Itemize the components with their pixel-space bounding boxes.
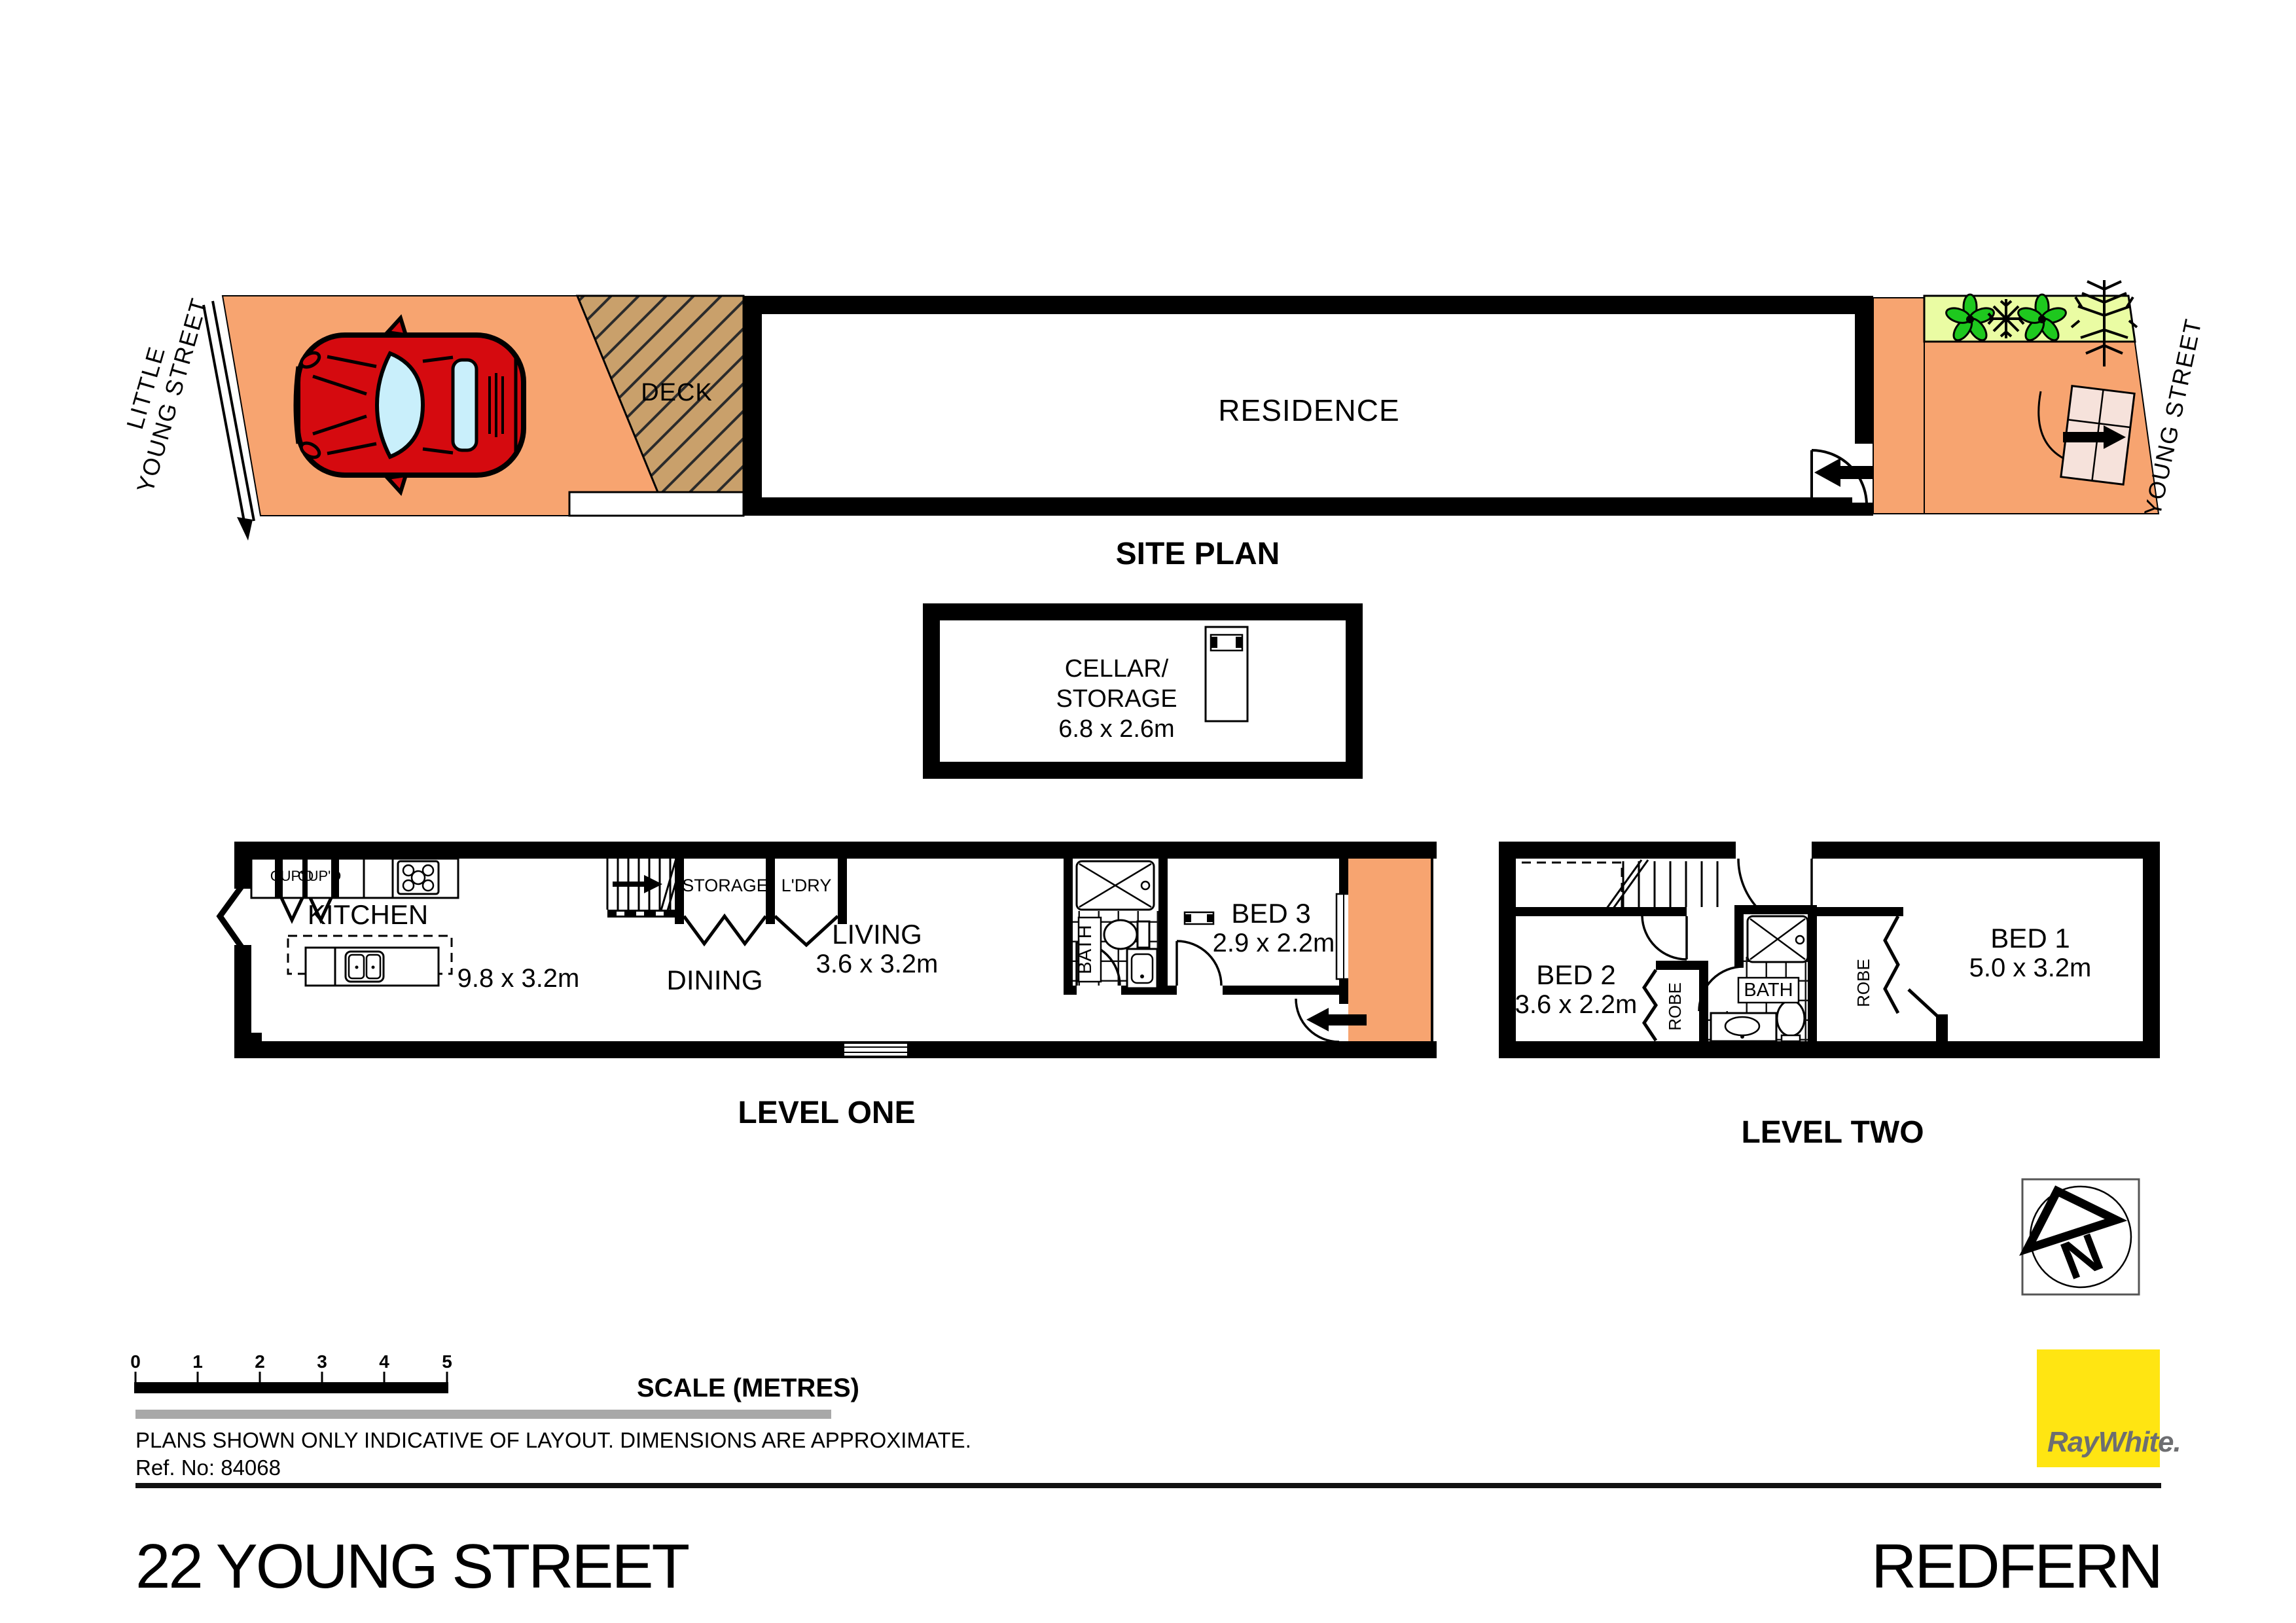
bed1-dimension: 5.0 x 3.2m — [1969, 954, 2092, 982]
scale-tick-1: 1 — [192, 1351, 203, 1372]
deck-step — [569, 492, 744, 516]
street-label-left: LITTLE YOUNG STREET — [105, 287, 213, 495]
scale-tick-0: 0 — [130, 1351, 141, 1372]
bed3-room: BED 3 2.9 x 2.2m — [1158, 859, 1339, 995]
living-dimension: 3.6 x 3.2m — [816, 950, 939, 978]
l2-vanity-icon — [1711, 1013, 1776, 1041]
robe2-label: ROBE — [1854, 959, 1873, 1007]
car-icon — [295, 318, 524, 492]
storage-bifold-door — [684, 916, 766, 944]
gray-divider — [135, 1410, 831, 1419]
l2-shower-icon — [1748, 916, 1808, 962]
l2-top-wall — [1499, 842, 2160, 859]
disclaimer: PLANS SHOWN ONLY INDICATIVE OF LAYOUT. D… — [135, 1428, 971, 1480]
robe1-label: ROBE — [1665, 982, 1685, 1031]
bed3-bench-icon — [1185, 912, 1213, 924]
footer-rule — [135, 1483, 2161, 1488]
bed3-label: BED 3 — [1231, 898, 1310, 929]
floorplan-page: LITTLE YOUNG STREET DECK RESIDENCE — [0, 0, 2296, 1623]
l2-bathroom: BATH — [1699, 905, 1817, 1041]
shower-icon — [1077, 861, 1154, 910]
l2-hall-door — [1642, 916, 1687, 959]
side-passage — [1873, 298, 1924, 514]
scale-tick-3: 3 — [317, 1351, 327, 1372]
cellar-plan: CELLAR/ STORAGE 6.8 x 2.6m — [923, 603, 1363, 779]
dining-label: DINING — [667, 965, 763, 995]
cellar-cabinet-icon — [1206, 627, 1247, 721]
residence-label: RESIDENCE — [1218, 393, 1399, 427]
kitchen-dimension: 9.8 x 3.2m — [457, 964, 580, 993]
street-direction-arrow-icon — [237, 517, 253, 541]
bed3-dimension: 2.9 x 2.2m — [1213, 929, 1335, 957]
street-label-right: YOUNG STREET — [2139, 315, 2207, 518]
floorplan-canvas: LITTLE YOUNG STREET DECK RESIDENCE — [0, 0, 2296, 1623]
laundry-bifold-door — [775, 916, 838, 945]
cupboard2-label: CUP'D — [298, 868, 342, 884]
scale-tick-5: 5 — [442, 1351, 452, 1372]
scale-bar-rule — [134, 1382, 448, 1393]
cupboard1-door-swing — [281, 898, 302, 920]
sink-icon — [346, 952, 384, 982]
site-plan: LITTLE YOUNG STREET DECK RESIDENCE — [105, 280, 2206, 571]
storage-label: STORAGE — [682, 876, 768, 895]
scale-tick-4: 4 — [379, 1351, 389, 1372]
footer-address: 22 YOUNG STREET — [135, 1531, 689, 1601]
l2-stair-wall — [1499, 907, 1687, 916]
l1-stair-rail — [607, 910, 676, 918]
toilet-icon — [1104, 920, 1149, 949]
l2-toilet-icon — [1777, 1001, 1804, 1041]
cellar-dimension: 6.8 x 2.6m — [1058, 715, 1174, 743]
level-one-plan: CUP'D CUP'D KITCHEN 9.8 x 3.2m — [220, 842, 1437, 1130]
bed2-dimension: 3.6 x 2.2m — [1515, 990, 1638, 1019]
vanity-icon — [1127, 949, 1157, 988]
cellar-label-line2: STORAGE — [1056, 685, 1177, 713]
scale-tick-2: 2 — [255, 1351, 265, 1372]
disclaimer-line1: PLANS SHOWN ONLY INDICATIVE OF LAYOUT. D… — [135, 1428, 971, 1452]
living-window — [844, 1044, 907, 1056]
robe2-closet: ROBE — [1817, 907, 1903, 1013]
l1-break-line — [220, 885, 243, 949]
deck-label: DECK — [641, 379, 713, 406]
l1-bathroom: BATH — [1064, 859, 1168, 995]
cellar-label-line1: CELLAR/ — [1065, 655, 1169, 683]
kitchen-label: KITCHEN — [308, 899, 428, 930]
l2-stair-void — [1507, 863, 1622, 911]
island-bench — [288, 936, 452, 986]
l2-bottom-wall — [1499, 1041, 2160, 1058]
site-plan-caption: SITE PLAN — [1116, 537, 1280, 571]
bed2-label: BED 2 — [1536, 959, 1615, 990]
cooktop-icon — [398, 861, 439, 894]
l1-bath-label: BATH — [1075, 925, 1096, 974]
brand-logo-text: RayWhite. — [2047, 1426, 2181, 1458]
bed1-label: BED 1 — [1990, 923, 2070, 954]
disclaimer-line2: Ref. No: 84068 — [135, 1455, 281, 1480]
l1-courtyard — [1348, 859, 1432, 1041]
footer-suburb: REDFERN — [1871, 1531, 2161, 1601]
level-two-plan: BED 2 3.6 x 2.2m ROBE — [1499, 842, 2160, 1150]
l2-bath-label: BATH — [1744, 980, 1793, 1001]
level-two-caption: LEVEL TWO — [1741, 1115, 1924, 1150]
scale-bar: 0 1 2 3 4 5 SCALE (METRES) — [130, 1351, 859, 1419]
stair-arrow-icon — [613, 875, 662, 893]
scale-caption: SCALE (METRES) — [637, 1374, 859, 1402]
l1-bottom-wall — [234, 1041, 1437, 1058]
level-one-caption: LEVEL ONE — [738, 1096, 915, 1130]
north-indicator: N — [2022, 1179, 2139, 1294]
l1-top-wall — [234, 842, 1437, 859]
laundry-label: L'DRY — [781, 876, 832, 895]
living-label: LIVING — [832, 919, 922, 950]
